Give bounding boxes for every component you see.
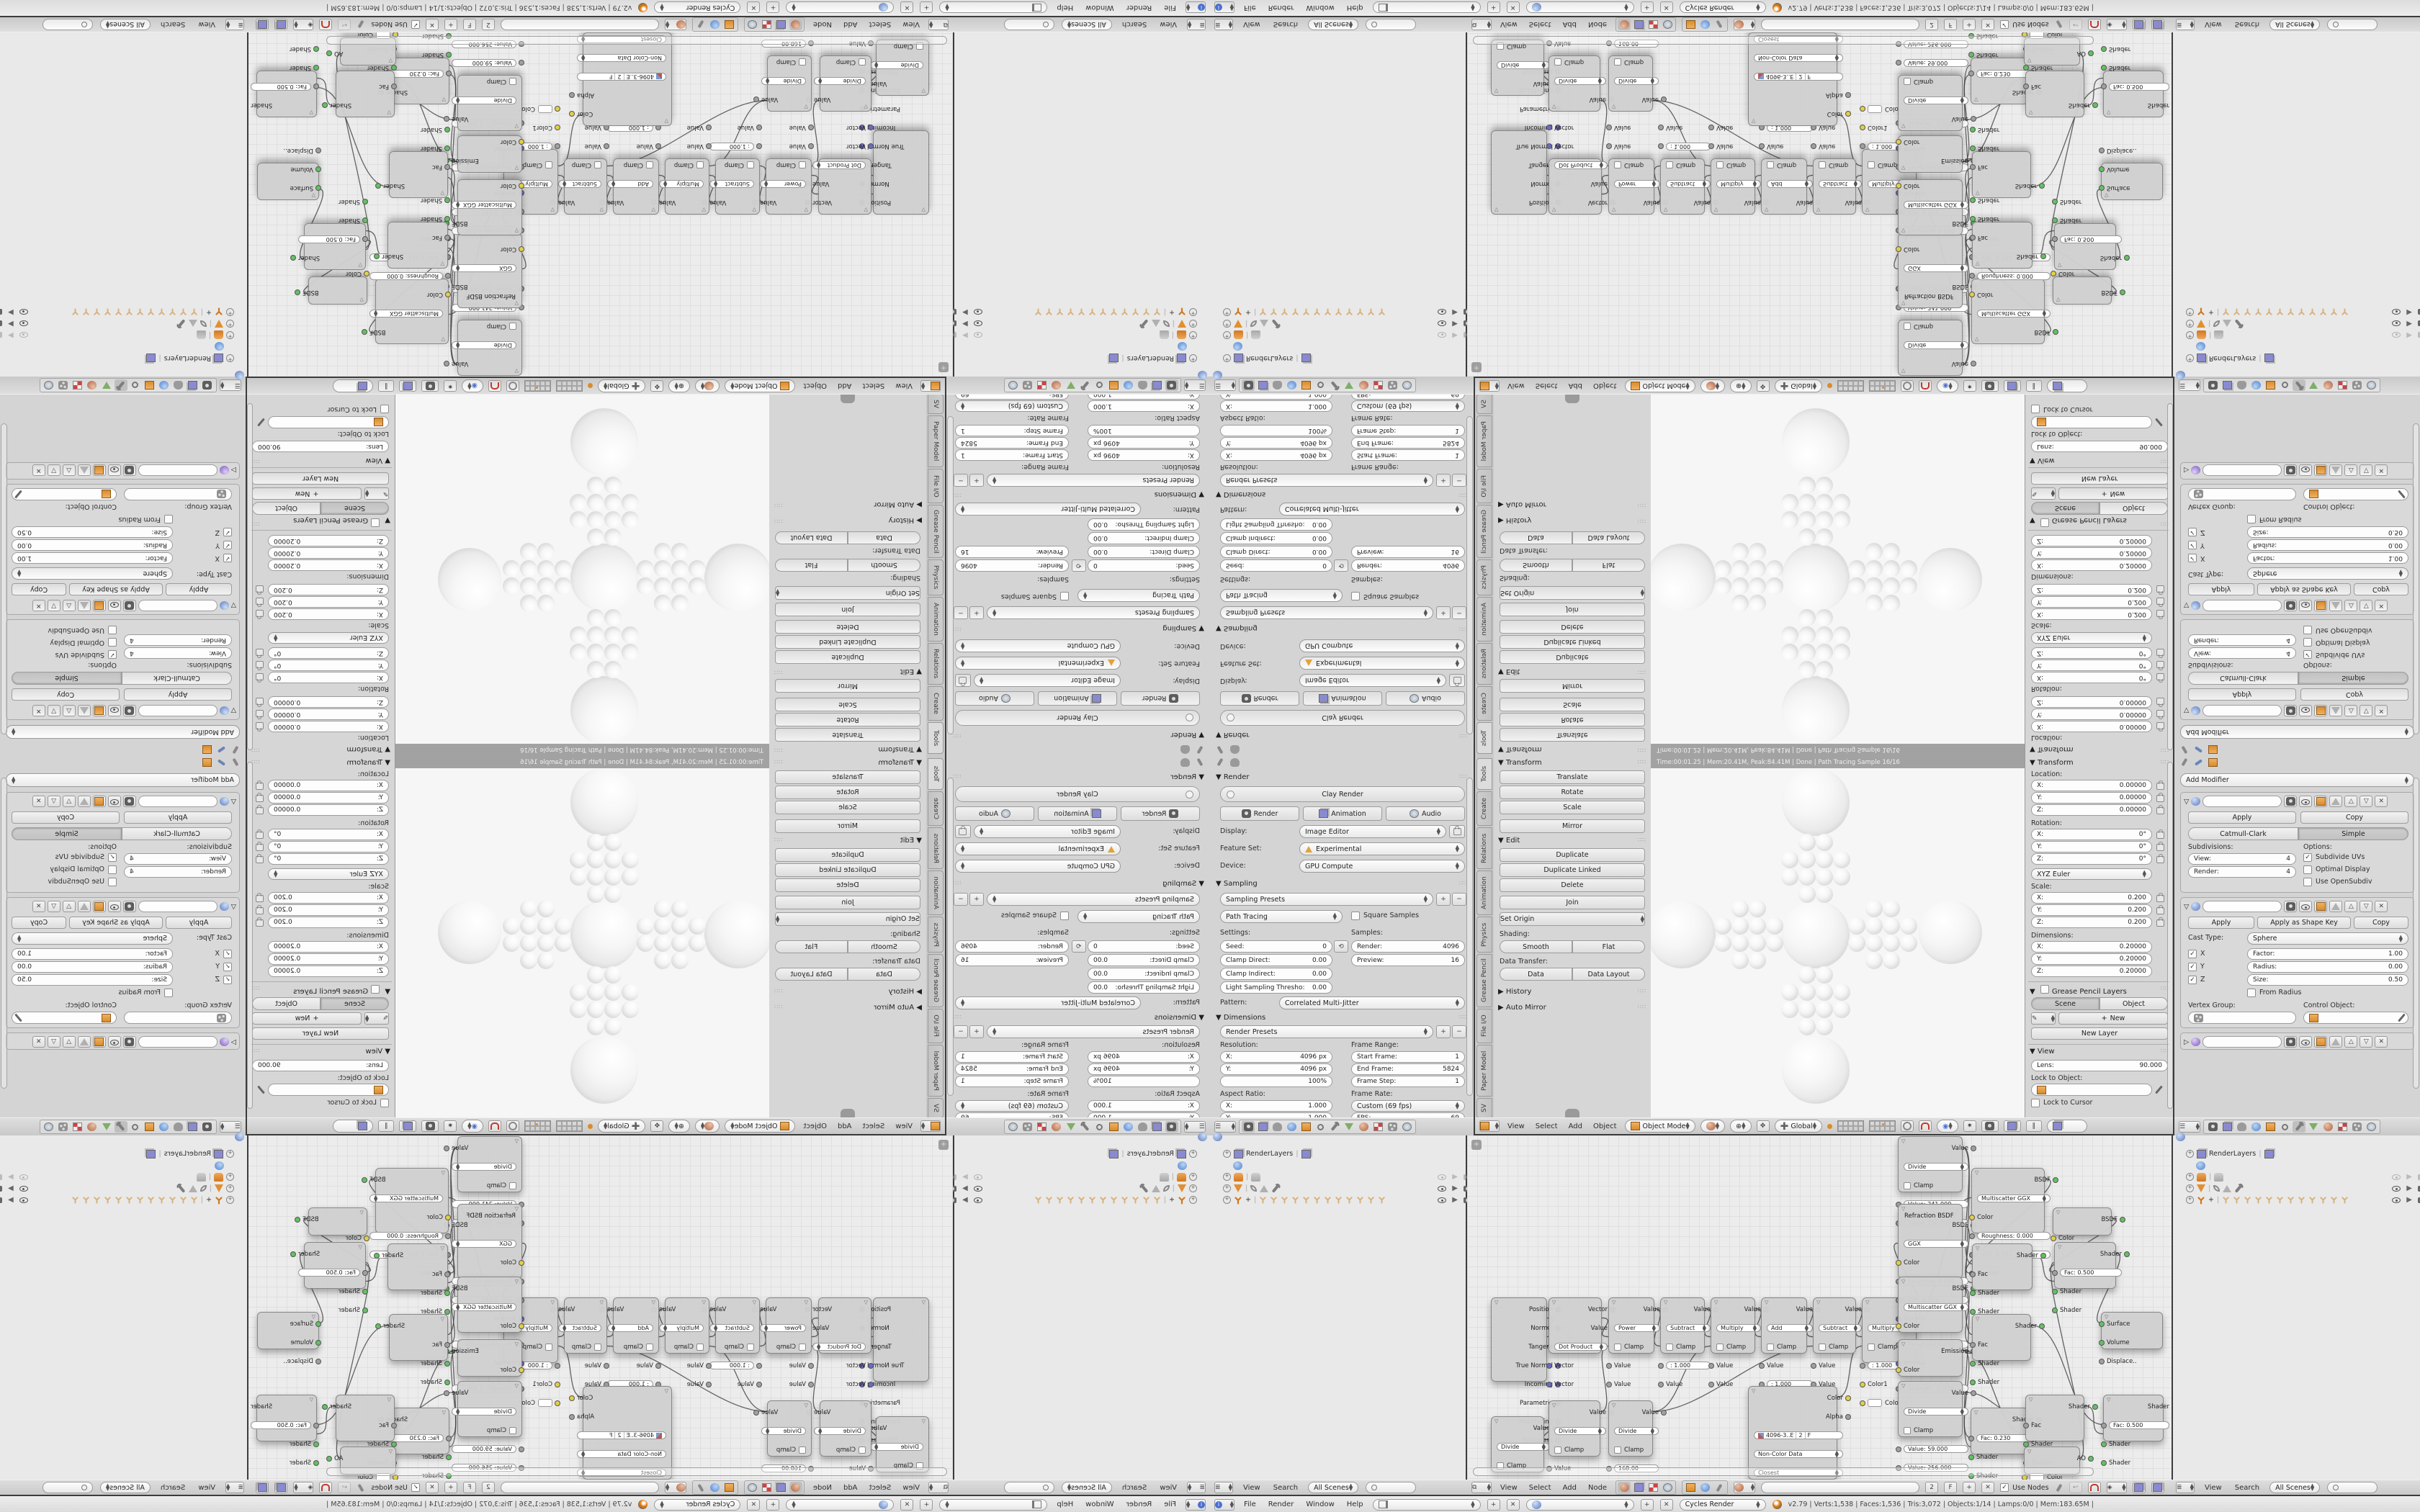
props2-scrollbar[interactable] [1, 423, 7, 734]
node-mix2[interactable]: ▽ShaderFacShaderShader [389, 151, 448, 198]
option-checkbox-1[interactable]: Optimal Display [9, 865, 117, 876]
layer-cell[interactable] [1853, 381, 1858, 386]
node-collapse-icon[interactable]: ▽ [515, 165, 519, 171]
input-socket[interactable] [313, 1441, 319, 1447]
toolshelf-tab-papermodel[interactable]: Paper Model [1476, 415, 1492, 467]
node-emis[interactable]: ▽EmissionColorStrength: 1.000 [1898, 135, 1963, 173]
menu-help[interactable]: Help [1054, 4, 1076, 12]
expander-icon[interactable]: + [1223, 354, 1231, 362]
tab-physics-icon[interactable] [42, 379, 55, 391]
node-mix6[interactable]: ▽ShaderFac: 0.500ShaderShader [2103, 1395, 2164, 1441]
node-checkbox[interactable] [1868, 1344, 1875, 1351]
rpreset-add-button[interactable]: + [969, 1025, 984, 1038]
node-mix3[interactable]: ▽ShaderFac: 0.230ShaderShader [392, 1408, 449, 1454]
node-glass[interactable]: ▽BSDFMultiscatter GGX▲▼ColorRoughness: 0… [1971, 1168, 2045, 1233]
move-up-button[interactable]: △ [63, 901, 76, 912]
frame-range-field-0[interactable]: Start Frame:1 [1351, 449, 1465, 461]
tab-object-icon[interactable] [143, 379, 156, 391]
layer-cell[interactable] [557, 381, 562, 386]
tool-translate[interactable]: Translate [775, 728, 920, 742]
node-collapse-icon[interactable]: ▽ [805, 207, 808, 212]
scale-field-1[interactable]: Y:0.200 [2031, 904, 2152, 916]
delete-modifier-button[interactable]: ✕ [32, 901, 45, 912]
input-socket[interactable] [1896, 1367, 1901, 1373]
pin-icon[interactable] [2056, 1483, 2062, 1492]
tab-scene-icon[interactable] [172, 379, 185, 391]
npanel-scrollbar[interactable] [247, 762, 253, 1109]
manipulator-button[interactable]: ✥ [650, 1120, 663, 1132]
panel-header-dimensions[interactable]: ▼ Dimensions∷∷ [1216, 488, 1468, 498]
rotation-field-2[interactable]: Z:0° [2031, 853, 2152, 865]
scale-field-2[interactable]: Z:0.200 [2031, 917, 2152, 928]
expander-icon[interactable]: + [1223, 1173, 1231, 1181]
input-socket[interactable] [1546, 143, 1552, 149]
expander-icon[interactable]: + [1223, 308, 1231, 316]
node-dropdown[interactable]: Non-Color Data▲▼ [1754, 1450, 1843, 1458]
copy-button[interactable]: Copy [2354, 583, 2408, 595]
gp-checkbox[interactable] [2040, 985, 2049, 994]
copy-button[interactable]: Copy [2354, 917, 2408, 929]
layer-cell[interactable] [530, 381, 535, 386]
input-socket[interactable] [313, 1423, 319, 1428]
control-object-field[interactable] [2303, 1012, 2408, 1024]
menu-search[interactable]: Search [158, 1484, 188, 1492]
tool-set-origin[interactable]: Set Origin▲▼ [775, 586, 920, 600]
output-socket[interactable] [295, 1217, 300, 1223]
node-sub2[interactable]: ▽ValueSubtract▲▼ClampValueValue [1813, 1297, 1856, 1354]
toolshelf-tab-tools[interactable]: Tools [1476, 722, 1492, 754]
color-swatch[interactable] [1868, 105, 1882, 113]
rotation-field-2[interactable]: Z:0° [268, 647, 389, 659]
subdivision-type-toggle[interactable]: Catmull-ClarkSimple [12, 672, 232, 685]
outliner-row[interactable]: ++|▶ [946, 1194, 1197, 1205]
delete-modifier-button[interactable]: ✕ [2375, 901, 2388, 912]
menu-render[interactable]: Render [1265, 4, 1297, 12]
output-socket[interactable] [753, 1410, 759, 1416]
node-dropdown[interactable]: Divide▲▼ [1554, 1427, 1606, 1435]
menu-view[interactable]: View [900, 21, 923, 29]
node-checkbox[interactable] [799, 1446, 806, 1454]
layer-cell[interactable] [1880, 381, 1885, 386]
rotation-field-1[interactable]: Y:0° [2031, 660, 2152, 671]
panel-header-edit[interactable]: ▼ Edit∷∷ [1498, 666, 1646, 675]
output-socket[interactable] [1661, 1410, 1667, 1416]
animation-button[interactable]: Animation [1038, 691, 1117, 706]
node-checkbox[interactable] [594, 162, 601, 169]
outliner-row[interactable]: +RenderLayers| [1223, 353, 1474, 364]
dt-0[interactable]: Data [848, 531, 920, 544]
tool-rotate[interactable]: Rotate [1500, 713, 1645, 726]
dimensions-field-1[interactable]: Y:0.20000 [2031, 547, 2152, 559]
integrator-dropdown[interactable]: Path Tracing▲▼ [1220, 910, 1343, 923]
node-dropdown[interactable]: Non-Color Data▲▼ [577, 54, 666, 62]
layer-cell[interactable] [577, 381, 582, 386]
node-checkbox[interactable] [594, 1344, 601, 1351]
gp-checkbox[interactable] [371, 985, 380, 994]
output-socket[interactable] [2039, 183, 2045, 189]
ctx-pin[interactable] [694, 1482, 707, 1493]
type-1[interactable]: Simple [2298, 827, 2408, 840]
output-socket[interactable] [444, 361, 449, 366]
modifier-name-field[interactable] [138, 705, 218, 716]
add-material-button[interactable]: + [1963, 19, 1976, 30]
snap-target-button[interactable]: ✷ [1963, 1120, 1976, 1132]
layer-cell[interactable] [1870, 1126, 1875, 1131]
node-dropdown[interactable]: Multiscatter GGX▲▼ [452, 1303, 516, 1311]
node-editor-hscrollbar[interactable] [326, 36, 947, 45]
tool-join[interactable]: Join [1500, 896, 1645, 909]
tab-object-data-icon[interactable] [1065, 379, 1077, 391]
render-engine-dropdown[interactable]: Cycles Render▲▼ [654, 2, 740, 14]
frame-range-field-1[interactable]: End Frame:5824 [1351, 1063, 1465, 1075]
node-dropdown[interactable]: Add▲▼ [607, 1324, 653, 1332]
menu-window[interactable]: Window [1303, 1500, 1337, 1508]
color-swatch[interactable] [538, 105, 552, 113]
restrict-eye-icon[interactable] [2392, 1197, 2401, 1203]
snap-element-dropdown[interactable]: ◉▲▼ [1937, 379, 1958, 392]
toolshelf-tab-animation[interactable]: Animation [1476, 870, 1492, 915]
input-socket[interactable] [315, 185, 321, 191]
pin-icon[interactable] [233, 758, 239, 767]
input-socket[interactable] [362, 1308, 368, 1313]
snap-mode-button[interactable]: ◈▲▼ [293, 19, 313, 30]
toolshelf-tab-create[interactable]: Create [1476, 791, 1492, 826]
menu-file[interactable]: File [1161, 1500, 1179, 1508]
modifier-header-third[interactable]: ▷△▽✕ [6, 464, 236, 477]
input-socket[interactable] [519, 246, 524, 252]
layer-cell[interactable] [572, 386, 577, 391]
ctx-cube[interactable] [1684, 1482, 1697, 1493]
restrict-edit-button[interactable] [93, 705, 106, 716]
editor-type-button[interactable]: ⧉▲▼ [928, 19, 949, 30]
restrict-cur-icon[interactable]: ▶ [1452, 1184, 1458, 1192]
restrict-cur-icon[interactable]: ▶ [2406, 1184, 2412, 1192]
outliner-row[interactable] [2176, 370, 2419, 381]
orientation-dropdown[interactable]: ➕Global▲▼ [598, 1120, 646, 1133]
tab-constraints-icon[interactable] [129, 379, 142, 391]
node-checkbox[interactable] [646, 162, 653, 169]
render-border-button[interactable] [1901, 1120, 1914, 1132]
cast-field-0[interactable]: Factor:1.00 [2247, 948, 2408, 960]
input-socket[interactable] [756, 143, 762, 149]
tab-texture-icon[interactable] [2336, 379, 2349, 391]
ctx-cube[interactable] [723, 19, 736, 30]
node-collapse-icon[interactable]: ▽ [1865, 207, 1869, 212]
pause-button[interactable]: ‖ [378, 1120, 394, 1132]
input-socket[interactable] [1970, 164, 1976, 170]
editor-type-button[interactable]: ≣▲▼ [1187, 1482, 1206, 1493]
node-collapse-icon[interactable]: ▽ [515, 123, 519, 129]
render-samples-field[interactable]: Render:4096 [1351, 940, 1465, 953]
ctx-world[interactable] [1698, 19, 1711, 30]
modifier-header-third[interactable]: ▷△▽✕ [2184, 1035, 2414, 1048]
control-object-field[interactable] [12, 488, 117, 500]
user-count-badge[interactable]: 2 [1796, 73, 1802, 80]
node-checkbox[interactable] [509, 78, 516, 86]
tool-join[interactable]: Join [1500, 603, 1645, 616]
tab-modifiers-icon[interactable] [1328, 379, 1341, 391]
node-dropdown[interactable]: Non-Color Data▲▼ [577, 1450, 666, 1458]
rotation-field-2[interactable]: Z:0° [268, 853, 389, 865]
add-icon[interactable]: + [1245, 308, 1251, 316]
scene-add-button[interactable]: + [1641, 2, 1654, 14]
input-socket[interactable] [2052, 236, 2058, 242]
menu-window[interactable]: Window [1083, 4, 1116, 12]
node-dropdown[interactable]: Divide▲▼ [814, 77, 866, 85]
gp-new-layer-button[interactable]: New Layer [2031, 1027, 2168, 1040]
layer-cell[interactable] [1853, 1126, 1858, 1131]
unlink-button[interactable]: ✕ [1981, 19, 1994, 30]
input-socket[interactable] [445, 273, 451, 279]
restrict-cur-icon[interactable]: ▶ [2406, 1173, 2412, 1181]
type-0[interactable]: Catmull-Clark [122, 672, 232, 685]
input-socket[interactable] [2099, 166, 2105, 172]
gp-scope-toggle[interactable]: SceneObject [2031, 503, 2168, 515]
gp-checkbox[interactable] [371, 518, 380, 527]
input-socket[interactable] [444, 164, 450, 170]
apply-button[interactable]: Apply [2188, 583, 2254, 595]
input-socket[interactable] [1546, 1363, 1552, 1369]
outliner-row[interactable] [1, 1131, 244, 1142]
restrict-camera-button[interactable] [123, 901, 136, 912]
input-socket[interactable] [1970, 1290, 1976, 1296]
cast-field-0[interactable]: Factor:1.00 [12, 948, 173, 960]
modifier-header-cast[interactable]: ▽△▽✕ [6, 599, 236, 612]
device-dropdown[interactable]: GPU Compute▲▼ [955, 860, 1121, 873]
node-dropdown[interactable]: GGX▲▼ [452, 264, 516, 272]
display-dropdown[interactable]: Image Editor▲▼ [1299, 825, 1446, 838]
toolshelf-tab-relations[interactable]: Relations [928, 827, 944, 869]
material-name-field[interactable] [1761, 19, 1919, 30]
node-collapse-icon[interactable]: ▽ [441, 261, 444, 266]
node-mult1[interactable]: ▽ValueMultiply▲▼ClampValueValue [1711, 1297, 1755, 1354]
pin-icon[interactable] [358, 20, 364, 29]
input-socket[interactable] [1860, 1400, 1865, 1406]
screen-add-button[interactable]: + [920, 2, 933, 14]
restrict-edit-button[interactable] [2314, 705, 2327, 716]
node-add1[interactable]: ▽ValueAdd▲▼ClampValue: 1.000 [613, 158, 659, 215]
node-dropdown[interactable]: Subtract▲▼ [709, 1324, 754, 1332]
tree-type-2[interactable] [1646, 1482, 1659, 1493]
tool-join[interactable]: Join [775, 603, 920, 616]
restrict-eye-icon[interactable] [1438, 1197, 1446, 1203]
option-checkbox-0[interactable]: ✓Subdivide UVs [2303, 649, 2411, 659]
outliner-item-label[interactable]: RenderLayers [1246, 1150, 1293, 1158]
menu-view[interactable]: View [892, 382, 915, 390]
lock-icon[interactable] [256, 598, 264, 605]
outliner-row[interactable]: +RenderLayers| [1223, 1148, 1474, 1159]
copy-button[interactable]: Copy [12, 917, 66, 929]
node-glass[interactable]: ▽BSDFMultiscatter GGX▲▼ColorRoughness: 0… [375, 279, 449, 344]
node-checkbox[interactable] [1767, 162, 1774, 169]
copy-node-button[interactable] [274, 19, 287, 30]
lock-icon[interactable] [2156, 610, 2164, 617]
shade-smooth[interactable]: Smooth [1500, 940, 1572, 953]
restrict-eye-icon[interactable] [19, 309, 28, 315]
layer-cell[interactable] [1880, 1121, 1885, 1126]
node-checkbox[interactable] [799, 1344, 806, 1351]
menu-help[interactable]: Help [1054, 1500, 1076, 1508]
editor-type-button[interactable]: ≣▲▼ [225, 1482, 244, 1493]
rotation-field-0[interactable]: X:0° [268, 829, 389, 840]
node-collapse-icon[interactable]: ▽ [1752, 118, 1755, 124]
location-field-2[interactable]: Z:0.00000 [2031, 804, 2152, 816]
menu-view[interactable]: View [195, 1484, 218, 1492]
restrict-eye-icon[interactable] [974, 320, 982, 326]
pattern-dropdown[interactable]: Correlated Multi-Jitter▲▼ [1279, 996, 1465, 1009]
panel-header-view[interactable]: ▼ View∷∷ [251, 1048, 390, 1057]
panel-header-transform[interactable]: ▼ Transform∷∷ [774, 744, 922, 753]
node-imgtex[interactable]: ▽ColorAlpha4096-3..E2FNon-Color Data▲▼Cl… [583, 32, 672, 126]
square-samples-checkbox[interactable]: Square Samples [961, 912, 1069, 922]
node-mix5[interactable]: ▽ShaderFacShaderShader [2025, 71, 2084, 117]
input-socket[interactable] [444, 197, 450, 203]
node-mix6[interactable]: ▽ShaderFac: 0.500ShaderShader [256, 71, 317, 117]
apply-shapekey-button[interactable]: Apply as Shape Key [69, 583, 163, 595]
layers-grid-0[interactable] [1837, 380, 1864, 392]
layer-cell[interactable] [1838, 1121, 1843, 1126]
scale-field-1[interactable]: Y:0.200 [268, 904, 389, 916]
pivot-dropdown[interactable]: ⊕▲▼ [668, 1120, 689, 1133]
display-scope-dropdown[interactable]: All Scenes▲▼ [1062, 1482, 1112, 1493]
render-subdiv-field[interactable]: Render:4 [124, 634, 232, 646]
panel-header-dimensions[interactable]: ▼ Dimensions∷∷ [952, 488, 1204, 498]
panel-header-transform[interactable]: ▼ Transform∷∷ [774, 759, 922, 768]
expander-icon[interactable]: + [1189, 331, 1197, 339]
node-divE[interactable]: ▽ValueDivide▲▼ClampValue: 59.000Value: 2… [1898, 1381, 1963, 1437]
restrict-edit-button[interactable] [93, 600, 106, 611]
outliner-row[interactable]: ++|▶ [946, 307, 1197, 318]
rpreset-remove-button[interactable]: − [1452, 1025, 1466, 1038]
menu-add[interactable]: Add [835, 1122, 854, 1130]
layer-cell[interactable] [530, 386, 535, 391]
lock-icon[interactable] [2156, 722, 2164, 729]
outliner-row[interactable]: ++|▶ [1223, 1194, 1474, 1205]
restrict-wire-button[interactable] [78, 1036, 91, 1048]
panel-header-render[interactable]: ▼ Render∷∷ [1216, 729, 1468, 739]
move-up-button[interactable]: △ [63, 1036, 76, 1048]
clamp-indirect-field[interactable]: Clamp Indirect:0.00 [1088, 532, 1200, 544]
node-dropdown[interactable]: Divide▲▼ [1904, 341, 1968, 349]
input-socket[interactable] [444, 216, 450, 222]
tool-rotate[interactable]: Rotate [775, 786, 920, 799]
snap-mode-button[interactable]: ◈▲▼ [293, 1482, 313, 1493]
node-collapse-icon[interactable]: ▽ [515, 300, 519, 306]
node-imgtex[interactable]: ▽ColorAlpha4096-3..E2FNon-Color Data▲▼Cl… [583, 1386, 672, 1480]
output-socket[interactable] [444, 1146, 449, 1151]
view-subdiv-field[interactable]: View:4 [124, 853, 232, 865]
gp-tab-0[interactable]: Scene [321, 502, 389, 515]
paste-node-button[interactable] [256, 19, 269, 30]
lock-icon[interactable] [2156, 783, 2164, 790]
input-socket[interactable] [1708, 1382, 1714, 1387]
input-socket[interactable] [1968, 52, 1974, 58]
viewport-shading-dropdown[interactable]: ▲▼ [1700, 1120, 1725, 1133]
node-collapse-icon[interactable]: ▽ [1714, 207, 1718, 212]
location-field-2[interactable]: Z:0.00000 [268, 804, 389, 816]
output-socket[interactable] [1971, 1390, 1976, 1396]
node-divC[interactable]: ▽ValueDivide▲▼Clamp168.00256.00 [767, 55, 812, 112]
rpreset-add-button[interactable]: + [969, 474, 984, 487]
outliner-row[interactable] [2176, 1131, 2419, 1142]
apply-shapekey-button[interactable]: Apply as Shape Key [69, 917, 163, 929]
tool-duplicate-linked[interactable]: Duplicate Linked [1500, 635, 1645, 649]
node-collapse-icon[interactable]: ▽ [1765, 207, 1768, 212]
output-socket[interactable] [322, 1404, 328, 1410]
node-emis[interactable]: ▽EmissionColorStrength: 1.000 [457, 135, 522, 173]
expander-icon[interactable]: + [1189, 354, 1197, 362]
toolshelf-tab-relations[interactable]: Relations [1476, 643, 1492, 685]
node-collapse-icon[interactable]: ▽ [665, 118, 668, 124]
input-socket[interactable] [315, 1359, 321, 1364]
node-checkbox[interactable] [1554, 1446, 1561, 1454]
menu-select[interactable]: Select [1526, 1484, 1554, 1492]
layer-cell[interactable] [1858, 386, 1863, 391]
node-collapse-icon[interactable]: ▽ [1901, 368, 1905, 374]
node-divB[interactable]: ▽ValueDivide▲▼ClampValueV: 19.480 [820, 55, 871, 112]
parent-node-tree-button[interactable]: ↩ [2069, 19, 2082, 30]
input-socket[interactable] [313, 84, 319, 89]
preset-add-button[interactable]: + [1436, 606, 1451, 619]
node-mix6[interactable]: ▽ShaderFac: 0.500ShaderShader [256, 1395, 317, 1441]
gp-new-button[interactable]: +New [252, 1012, 362, 1025]
input-socket[interactable] [1708, 143, 1714, 149]
shade-flat[interactable]: Flat [775, 940, 848, 953]
restrict-eye-icon[interactable] [974, 1174, 982, 1180]
node-dropdown[interactable]: Divide▲▼ [761, 77, 806, 85]
data-transfer-buttons[interactable]: DataData Layout [1500, 531, 1645, 544]
gp-pencil-button[interactable]: ✎▲▼ [2031, 1012, 2056, 1025]
restrict-eye-button[interactable] [2299, 464, 2312, 476]
outliner-row[interactable] [956, 1131, 1207, 1142]
node-value-field[interactable]: Fac: 0.500 [2060, 1269, 2122, 1277]
input-socket[interactable] [1970, 127, 1976, 132]
axis-checkbox-2[interactable]: ✓Z [189, 526, 232, 536]
aspect-field-0[interactable]: X:1.000 [1220, 400, 1332, 412]
menu-select[interactable]: Select [866, 21, 894, 29]
menu-render[interactable]: Render [1124, 4, 1155, 12]
user-count-badge[interactable]: 2 [617, 1432, 624, 1439]
users-count-button[interactable]: 2 [482, 19, 495, 30]
outliner-item-label[interactable]: RenderLayers [1127, 1150, 1174, 1158]
move-down-button[interactable]: ▽ [48, 796, 60, 807]
input-socket[interactable] [519, 1260, 524, 1266]
tab-material-icon[interactable] [2321, 379, 2334, 391]
display-dropdown[interactable]: Image Editor▲▼ [974, 674, 1121, 687]
type-1[interactable]: Simple [12, 672, 122, 685]
animation-button[interactable]: Animation [1303, 691, 1382, 706]
clamp-indirect-field[interactable]: Clamp Indirect:0.00 [1088, 968, 1200, 980]
layer-cell[interactable] [530, 1126, 535, 1131]
tab-modifiers-icon[interactable] [1079, 379, 1092, 391]
type-1[interactable]: Simple [2298, 672, 2408, 685]
modifier-name-field[interactable] [2202, 901, 2282, 912]
outliner-row[interactable]: +RenderLayers| [2186, 1148, 2420, 1159]
input-socket[interactable] [555, 1382, 560, 1387]
layer-cell[interactable] [557, 386, 562, 391]
layer-cell[interactable] [1875, 381, 1880, 386]
preset-add-button[interactable]: + [1436, 893, 1451, 906]
output-socket[interactable] [295, 289, 300, 295]
copy-node-button[interactable] [2133, 19, 2146, 30]
input-socket[interactable] [445, 292, 451, 297]
scale-field-0[interactable]: X:0.200 [268, 892, 389, 904]
input-socket[interactable] [362, 217, 368, 223]
output-socket[interactable] [2124, 1251, 2130, 1257]
modifier-header-third[interactable]: ▷△▽✕ [6, 1035, 236, 1048]
input-socket[interactable] [315, 166, 321, 172]
input-socket[interactable] [1658, 1363, 1664, 1369]
